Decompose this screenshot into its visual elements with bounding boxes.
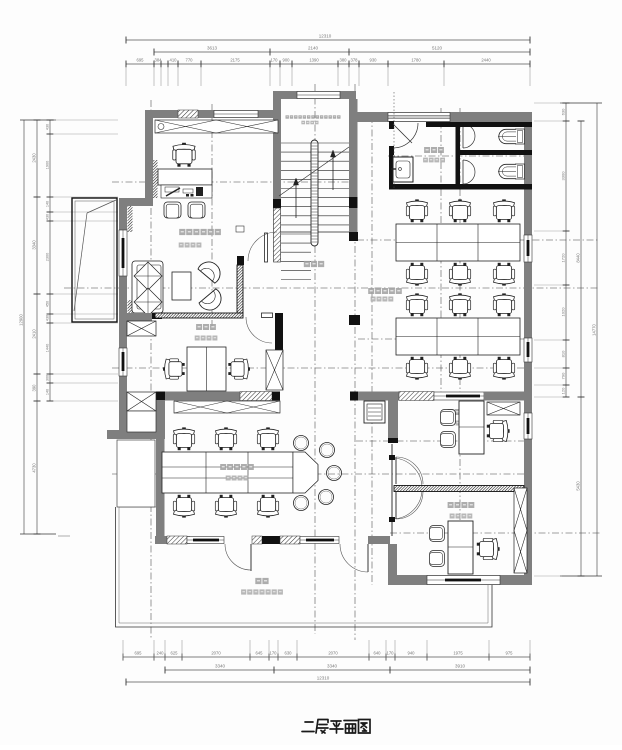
svg-text:1440: 1440 xyxy=(46,344,50,352)
svg-text:695: 695 xyxy=(135,651,143,656)
svg-text:410: 410 xyxy=(170,58,178,63)
svg-text:140: 140 xyxy=(46,389,50,395)
svg-text:630: 630 xyxy=(285,651,293,656)
svg-text:1720: 1720 xyxy=(561,253,566,263)
svg-text:770: 770 xyxy=(186,58,194,63)
svg-text:2440: 2440 xyxy=(481,58,491,63)
svg-text:3340: 3340 xyxy=(32,240,37,250)
svg-text:2070: 2070 xyxy=(211,651,221,656)
svg-text:170: 170 xyxy=(271,58,279,63)
svg-text:140: 140 xyxy=(46,201,50,207)
svg-text:790: 790 xyxy=(561,372,566,379)
svg-text:12310: 12310 xyxy=(319,34,332,39)
svg-text:3340: 3340 xyxy=(327,664,338,669)
svg-text:900: 900 xyxy=(283,58,291,63)
svg-text:12900: 12900 xyxy=(19,314,24,326)
svg-text:8440: 8440 xyxy=(576,253,581,263)
svg-text:300: 300 xyxy=(46,375,50,381)
svg-text:2300: 2300 xyxy=(46,253,50,261)
svg-text:380: 380 xyxy=(340,58,348,63)
svg-text:1390: 1390 xyxy=(309,58,319,63)
svg-text:3910: 3910 xyxy=(455,664,466,669)
svg-text:120: 120 xyxy=(561,387,566,394)
svg-text:3300: 3300 xyxy=(561,171,566,181)
svg-text:390: 390 xyxy=(32,384,37,392)
svg-text:2140: 2140 xyxy=(308,46,319,51)
svg-text:3340: 3340 xyxy=(215,664,226,669)
svg-text:930: 930 xyxy=(370,58,378,63)
svg-text:630: 630 xyxy=(561,108,566,115)
svg-text:14770: 14770 xyxy=(592,324,597,336)
svg-text:5120: 5120 xyxy=(432,46,443,51)
svg-text:430: 430 xyxy=(46,214,50,220)
svg-text:170: 170 xyxy=(387,651,395,656)
svg-text:1975: 1975 xyxy=(453,651,463,656)
svg-text:3613: 3613 xyxy=(207,46,218,51)
svg-text:1780: 1780 xyxy=(411,58,421,63)
svg-text:450: 450 xyxy=(46,301,50,307)
svg-text:640: 640 xyxy=(374,651,382,656)
svg-text:810: 810 xyxy=(561,350,566,357)
svg-text:1020: 1020 xyxy=(561,307,566,317)
svg-text:384: 384 xyxy=(155,58,163,63)
svg-text:1900: 1900 xyxy=(46,161,50,169)
svg-text:2410: 2410 xyxy=(32,329,37,339)
svg-text:2175: 2175 xyxy=(230,58,240,63)
svg-text:975: 975 xyxy=(506,651,514,656)
svg-text:4730: 4730 xyxy=(32,463,37,473)
svg-text:645: 645 xyxy=(256,651,264,656)
svg-text:240: 240 xyxy=(157,651,165,656)
svg-text:170: 170 xyxy=(270,651,278,656)
svg-text:430: 430 xyxy=(46,124,50,130)
svg-text:12310: 12310 xyxy=(317,676,330,681)
svg-text:378: 378 xyxy=(351,58,359,63)
svg-text:430: 430 xyxy=(46,315,50,321)
svg-text:5430: 5430 xyxy=(576,481,581,491)
svg-text:940: 940 xyxy=(408,651,416,656)
svg-text:2430: 2430 xyxy=(32,153,37,163)
svg-text:2070: 2070 xyxy=(328,651,338,656)
svg-text:625: 625 xyxy=(171,651,179,656)
svg-text:695: 695 xyxy=(137,58,145,63)
